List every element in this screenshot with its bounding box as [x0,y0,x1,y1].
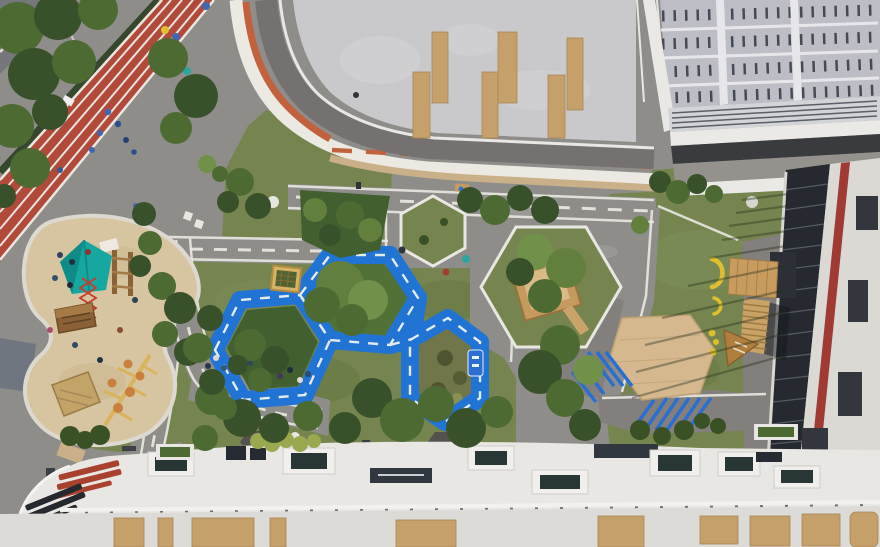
tree [457,187,483,213]
tree [183,333,213,363]
tree [329,412,361,444]
sign-glyph [472,364,479,367]
roof-bench [413,72,430,138]
skylight-glass [658,455,692,471]
tree [217,191,239,213]
child-dot [105,109,111,115]
child-dot [205,363,211,369]
tree [197,305,223,331]
tree [480,195,510,225]
tree [148,38,188,78]
hedge-blob [630,420,650,440]
roof-vent-dark [226,446,246,460]
blue-umbrella [202,2,210,10]
child-dot [305,371,311,377]
person-dot [399,247,406,254]
tree [336,304,368,336]
roof-timber-panel [598,516,644,547]
yellow-hedge [292,436,308,452]
hedge-blob [653,427,671,445]
child-dot [213,355,219,361]
stepping-disc-orange [108,379,117,388]
roof-timber-panel [158,518,173,547]
tree [248,368,272,392]
tree [10,148,50,188]
tree [164,292,196,324]
hedge-blob [666,180,690,204]
roof-timber-panel [114,518,144,547]
grid-interior [275,270,297,288]
scene-canvas [0,0,880,547]
traffic-sign-blue [468,350,483,376]
hedge-blob [705,185,723,203]
tree [293,401,323,431]
child-dot [57,167,63,173]
roof-bench [432,32,448,103]
island-shrub [419,235,429,245]
tree [138,231,162,255]
child-dot [47,327,53,333]
island-shrub [440,218,448,226]
dark-panel [856,196,878,230]
garden-texture [437,350,453,366]
trash-bin [356,182,361,189]
child-dot [117,327,123,333]
stepping-disc-orange [113,403,123,413]
tree [569,409,601,441]
roof-timber-panel [270,518,286,547]
roof-bench [498,32,517,103]
child-dot [52,275,58,281]
garden-texture [453,371,467,385]
tree [52,40,96,84]
tree [259,413,289,443]
tree [573,355,603,385]
dark-panel [838,372,862,416]
roof-timber-panel [802,514,840,546]
tree [212,166,228,182]
dark-panel [848,280,868,322]
stepping-disc-orange [136,372,145,381]
bench-dark [122,446,136,451]
child-dot [89,147,95,153]
child-dot [72,342,78,348]
child-dot [97,130,103,136]
tree [418,386,454,422]
tree [446,408,486,448]
roof-item [353,92,359,98]
tree [228,355,248,375]
child-dot [97,357,103,363]
roof-mottle [340,36,420,84]
tree [160,112,192,144]
child-dot [131,149,137,155]
tree [8,48,60,100]
roof-timber-panel [396,520,456,547]
teal-play-dot [462,255,470,263]
stepping-disc-orange [124,360,133,369]
tree [213,396,237,420]
roof-timber-panel [700,516,738,544]
yellow-hedge [307,434,321,448]
roof-planter-greens [160,447,190,457]
hedge-blob [710,418,726,434]
child-dot [123,137,129,143]
roof-vent-dark [756,452,782,462]
tree [380,398,424,442]
roof-bench [548,75,565,138]
child-dot [85,249,91,255]
child-dot [277,373,283,379]
hedge-blob [687,174,707,194]
child-dot [115,121,121,127]
child-dot [287,367,293,373]
roof-planter-greens [758,427,794,437]
blue-connector [412,298,418,338]
aerial-playground-photo [0,0,880,547]
tree [199,369,225,395]
hedge-blob [674,420,694,440]
person-dot [443,269,450,276]
child-dot [57,252,63,258]
yellow-umbrella [161,26,169,34]
roof-timber-panel [192,518,254,547]
roof-timber-panel [750,516,790,546]
tree [174,74,218,118]
roof-mottle [440,24,500,56]
skylight-glass [291,453,327,469]
skylight-glass [540,475,580,489]
roof-bench [567,38,583,110]
tree [152,321,178,347]
child-dot [67,282,73,288]
stair-upper-deck [728,258,778,298]
flat-skylight [594,444,658,458]
tree [304,287,340,323]
tree [506,258,534,286]
skylight-glass [725,457,753,471]
hedge-blob [694,413,710,429]
shrub [358,218,382,242]
yellow-piece [713,339,719,345]
hedge-blob [90,425,110,445]
child-dot [69,259,75,265]
roof-timber-panel [850,512,878,547]
tree [192,425,218,451]
skylight-glass [781,470,813,483]
shrub [319,224,341,246]
tree [245,193,271,219]
skylight-glass [475,451,507,465]
shrub [303,198,327,222]
tree [528,279,562,313]
roof-bench [482,72,498,138]
child-dot [132,297,138,303]
tree [631,216,649,234]
child-dot [297,377,303,383]
tree [481,396,513,428]
tree [132,202,156,226]
child-dot [221,365,227,371]
tree [507,185,533,211]
sign-glyph [472,356,479,359]
tree [129,255,151,277]
tree [32,94,68,130]
roof-vent-dark [250,448,266,460]
climb-grid-frame [271,266,301,293]
stepping-disc-orange [125,387,135,397]
tree [531,196,559,224]
